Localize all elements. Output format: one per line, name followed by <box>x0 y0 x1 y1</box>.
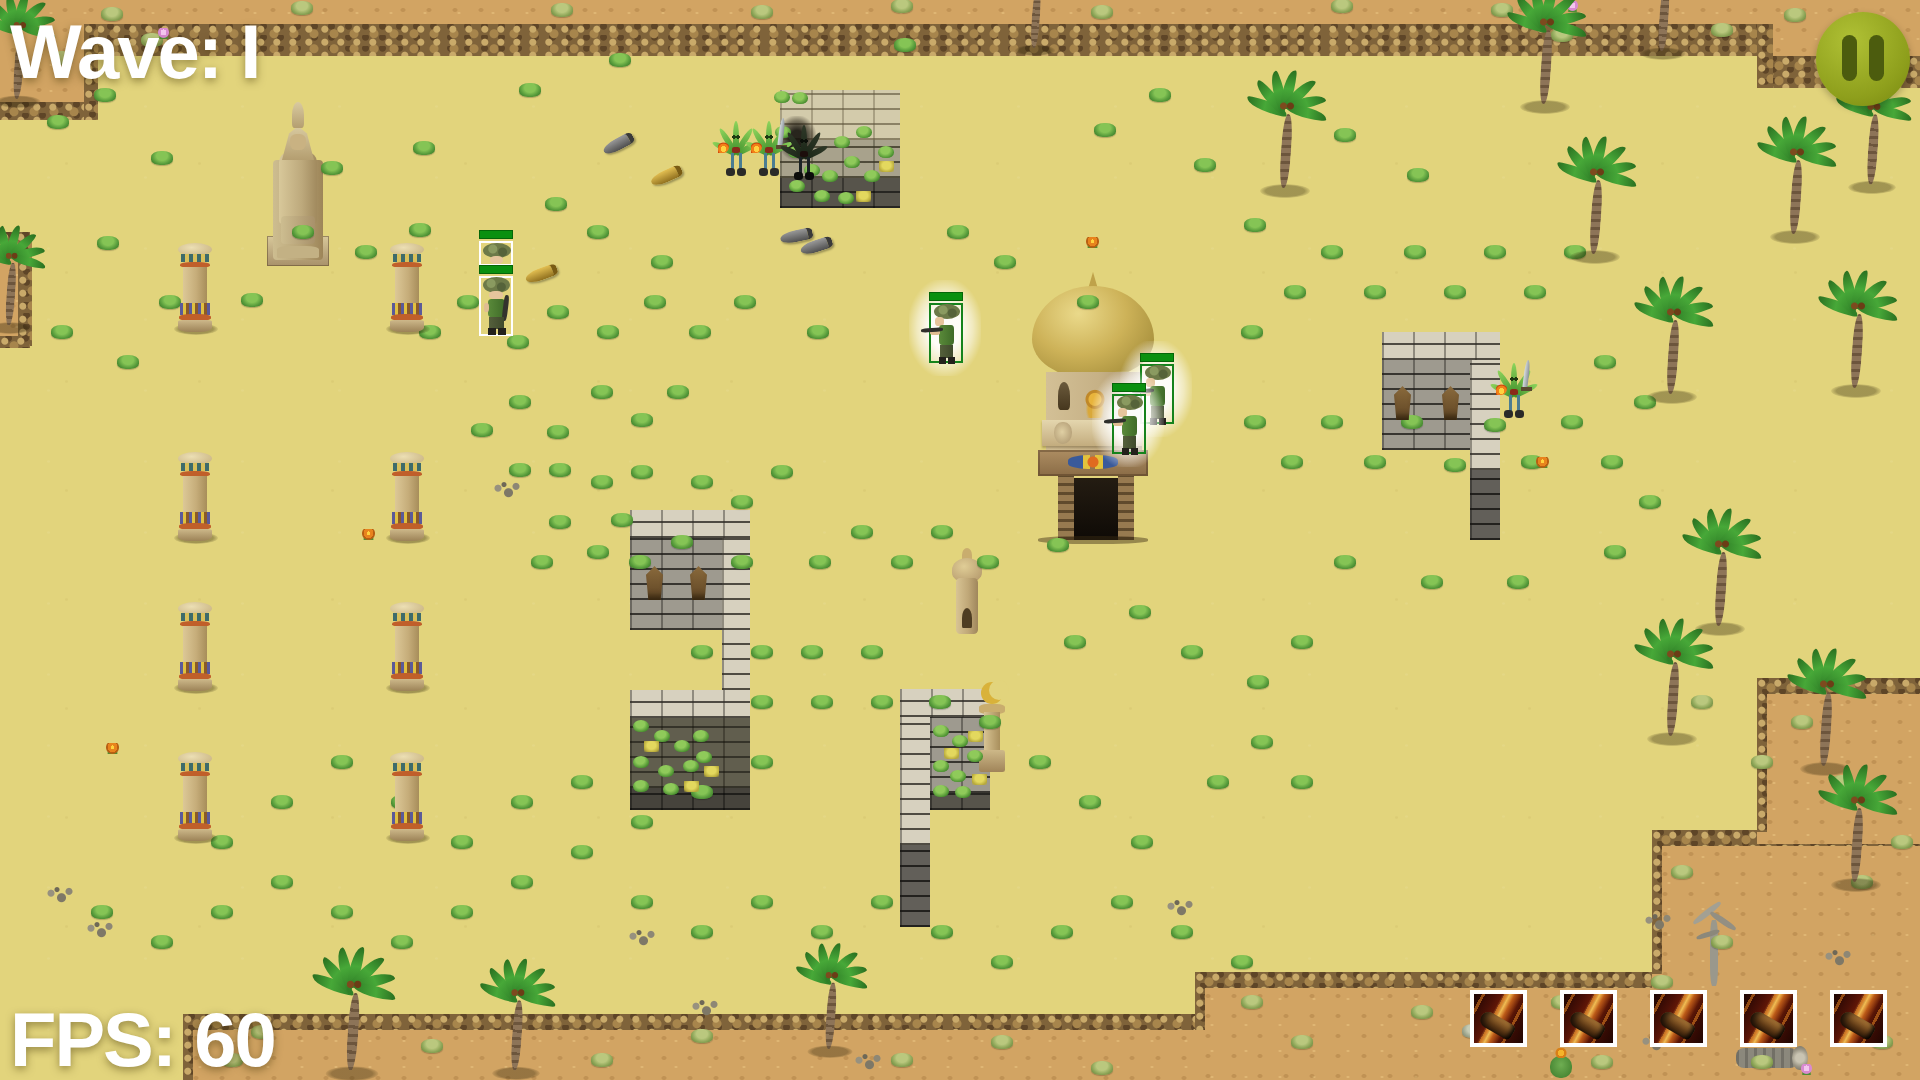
wall-vine-leaf <box>693 730 709 742</box>
grass-tuft <box>1604 545 1626 559</box>
wall-yellow-tuft <box>972 774 987 785</box>
wall-vine-leaf <box>864 170 880 182</box>
soldier-boot <box>488 328 496 335</box>
dry-grass-tuft <box>1671 865 1693 879</box>
dropped-bullet-gold <box>649 164 684 188</box>
health-bar <box>1140 353 1174 362</box>
column-plinth <box>390 320 424 332</box>
health-bar <box>479 265 513 274</box>
wall-vine-leaf <box>856 126 872 138</box>
wall-vine-leaf <box>950 770 966 782</box>
grass-tuft <box>811 695 833 709</box>
grass-tuft <box>1484 418 1506 432</box>
wave-counter: Wave: I <box>10 8 259 95</box>
weed-boot <box>794 172 803 180</box>
grass-tuft <box>591 475 613 489</box>
column-plinth <box>178 529 212 541</box>
grass-tuft <box>1029 755 1051 769</box>
grass-tuft <box>771 465 793 479</box>
grass-tuft <box>241 293 263 307</box>
pebble-cluster <box>492 481 522 499</box>
column-neck-band <box>181 463 209 471</box>
dry-grass-tuft <box>291 1 313 15</box>
grass-tuft <box>47 115 69 129</box>
grass-tuft <box>979 715 1001 729</box>
palm-coconuts <box>1667 308 1681 316</box>
pause-button[interactable] <box>1816 12 1910 106</box>
soldier-unit[interactable] <box>1108 379 1150 461</box>
weed-face <box>765 134 773 140</box>
palm-trunk <box>1849 808 1864 883</box>
pebble-cluster <box>627 929 657 947</box>
grass-tuft <box>1129 605 1151 619</box>
dry-grass-tuft <box>1331 0 1353 13</box>
game-viewport: Wave: I FPS: 60 <box>0 0 1920 1080</box>
grass-tuft <box>1244 218 1266 232</box>
grass-tuft <box>571 845 593 859</box>
ability-bar <box>1470 990 1887 1047</box>
soldier-unit[interactable] <box>475 261 517 343</box>
palm-tree <box>1750 134 1840 244</box>
palm-tree <box>1780 666 1870 776</box>
grass-tuft <box>609 53 631 67</box>
grass-tuft <box>1111 895 1133 909</box>
weed-boot <box>1515 410 1524 418</box>
dry-grass-tuft <box>1411 1005 1433 1019</box>
palm-trunk <box>1665 662 1680 737</box>
grass-tuft <box>631 815 653 829</box>
flower-orange <box>1536 457 1549 468</box>
palm-trunk <box>1538 30 1553 105</box>
grass-tuft <box>1281 455 1303 469</box>
grass-tuft <box>929 695 951 709</box>
grass-tuft <box>871 695 893 709</box>
dry-grass-tuft <box>1291 1035 1313 1049</box>
grass-tuft <box>1094 123 1116 137</box>
grass-tuft <box>1601 455 1623 469</box>
column-plinth <box>390 829 424 841</box>
dry-grass-tuft <box>1651 975 1673 989</box>
palm-coconuts <box>1280 102 1294 110</box>
palm-shadow <box>0 95 41 108</box>
column-shaft <box>183 476 207 514</box>
grass-tuft <box>1181 645 1203 659</box>
column-plinth <box>390 679 424 691</box>
weed-face <box>1510 376 1518 382</box>
grass-tuft <box>1051 925 1073 939</box>
grass-tuft <box>547 425 569 439</box>
egyptian-column <box>178 752 212 842</box>
grass-tuft <box>691 925 713 939</box>
grass-tuft <box>751 755 773 769</box>
palm-tree <box>305 966 400 1080</box>
grass-tuft <box>644 295 666 309</box>
wall-vine-leaf <box>838 192 854 204</box>
wall-vine-leaf <box>696 751 712 763</box>
grass-tuft <box>631 413 653 427</box>
dry-grass-tuft <box>891 0 913 13</box>
grass-tuft <box>991 955 1013 969</box>
palm-tree <box>1623 0 1704 60</box>
soldier-face <box>489 291 503 299</box>
grass-tuft <box>1251 735 1273 749</box>
palm-tree <box>1811 288 1901 398</box>
egyptian-column <box>178 602 212 692</box>
grass-tuft <box>1334 128 1356 142</box>
palm-coconuts <box>1667 650 1681 658</box>
grass-tuft <box>511 875 533 889</box>
grass-tuft <box>1364 285 1386 299</box>
wall-vine-leaf <box>633 756 649 768</box>
palm-trunk <box>1849 314 1864 389</box>
grass-tuft <box>751 645 773 659</box>
wall-yellow-tuft <box>644 741 659 752</box>
dry-grass-tuft <box>891 1053 913 1067</box>
soldier-sprite <box>480 277 512 335</box>
pebble-cluster <box>1165 899 1195 917</box>
grass-tuft <box>547 305 569 319</box>
column-plinth <box>178 320 212 332</box>
grass-tuft <box>611 513 633 527</box>
grass-tuft <box>931 525 953 539</box>
wall-vine-leaf <box>633 720 649 732</box>
wall-yellow-tuft <box>944 748 959 759</box>
pause-icon-bar <box>1869 35 1884 84</box>
weed-boot <box>770 168 779 176</box>
ability-slot-5[interactable] <box>1830 990 1887 1047</box>
palm-trunk <box>1278 114 1293 189</box>
ability-slot-1[interactable] <box>1470 990 1527 1047</box>
idol-figure <box>646 566 663 600</box>
column-plinth <box>178 679 212 691</box>
wall-vine-leaf <box>952 735 968 747</box>
grass-tuft <box>331 905 353 919</box>
grass-tuft <box>271 795 293 809</box>
grass-tuft <box>1077 295 1099 309</box>
grass-tuft <box>211 905 233 919</box>
palm-coconuts <box>1790 148 1804 156</box>
wall-vine-leaf <box>663 783 679 795</box>
grass-tuft <box>1047 538 1069 552</box>
palm-coconuts <box>511 989 524 997</box>
grass-tuft <box>629 555 651 569</box>
grass-tuft <box>117 355 139 369</box>
grass-tuft <box>587 225 609 239</box>
wall-vine-leaf <box>933 785 949 797</box>
dry-grass-tuft <box>1711 935 1733 949</box>
grass-tuft <box>597 325 619 339</box>
grass-tuft <box>1291 635 1313 649</box>
grass-tuft <box>1131 835 1153 849</box>
column-shaft <box>183 267 207 305</box>
dropped-bullet-grey <box>601 131 636 157</box>
grass-tuft <box>1321 245 1343 259</box>
wall-vine-leaf <box>844 156 860 168</box>
grass-tuft <box>1404 245 1426 259</box>
grass-tuft <box>355 245 377 259</box>
palm-coconuts <box>347 980 362 988</box>
palm-tree <box>790 959 871 1058</box>
grass-tuft <box>671 535 693 549</box>
column-neck-band <box>393 463 421 471</box>
palm-trunk <box>824 982 838 1049</box>
wall-yellow-tuft <box>704 766 719 777</box>
grass-tuft <box>751 895 773 909</box>
grass-tuft <box>271 875 293 889</box>
grass-tuft <box>471 423 493 437</box>
column-shaft <box>183 776 207 814</box>
pause-icon <box>1842 35 1857 84</box>
grass-tuft <box>811 925 833 939</box>
ability-slot-4[interactable] <box>1740 990 1797 1047</box>
egyptian-column <box>390 452 424 542</box>
dry-grass-tuft <box>551 3 573 17</box>
grass-tuft <box>1407 168 1429 182</box>
palm-trunk <box>1657 0 1671 51</box>
soldier-boot <box>1122 448 1129 455</box>
weed-boot <box>737 168 746 176</box>
grass-tuft <box>977 555 999 569</box>
palm-trunk <box>510 1000 524 1071</box>
flower-orange <box>1086 237 1099 248</box>
palm-tree <box>1627 294 1717 404</box>
grass-tuft <box>1444 285 1466 299</box>
grass-tuft <box>1444 458 1466 472</box>
dry-grass-tuft <box>1784 8 1806 22</box>
grass-tuft <box>409 223 431 237</box>
palm-coconuts <box>1851 796 1865 804</box>
dry-grass-tuft <box>591 1053 613 1067</box>
column-neck-band <box>181 254 209 262</box>
dry-grass-tuft <box>421 1039 443 1053</box>
column-shaft <box>395 626 419 664</box>
egyptian-column <box>178 452 212 542</box>
palm-coconuts <box>1540 18 1554 26</box>
grass-tuft <box>751 695 773 709</box>
grass-tuft <box>1064 635 1086 649</box>
weed-monster[interactable] <box>1498 360 1530 420</box>
grass-tuft <box>509 395 531 409</box>
grass-tuft <box>511 795 533 809</box>
palm-coconuts <box>1715 540 1729 548</box>
palm-trunk <box>1866 114 1880 185</box>
wall-vine-leaf <box>674 740 690 752</box>
grass-tuft <box>451 905 473 919</box>
grass-tuft <box>631 895 653 909</box>
ability-slot-3[interactable] <box>1650 990 1707 1047</box>
palm-tree <box>1811 782 1901 892</box>
sword-hilt <box>1521 387 1532 391</box>
grass-tuft <box>809 555 831 569</box>
grass-tuft <box>691 475 713 489</box>
palm-coconuts <box>6 252 18 259</box>
grass-tuft <box>894 38 916 52</box>
dropped-bullet-gold <box>524 263 559 286</box>
grass-tuft <box>549 515 571 529</box>
grass-tuft <box>509 463 531 477</box>
grass-tuft <box>851 525 873 539</box>
grass-tuft <box>549 463 571 477</box>
soldier-arm <box>484 303 489 312</box>
palm-coconuts <box>1851 302 1865 310</box>
grass-tuft <box>1231 955 1253 969</box>
wall-vine-leaf <box>933 725 949 737</box>
grass-tuft <box>1241 325 1263 339</box>
health-bar <box>929 292 963 301</box>
idol-figure <box>1442 386 1459 420</box>
idol-figure <box>1394 386 1411 420</box>
soldier-boot <box>1131 448 1138 455</box>
column-neck-band <box>181 613 209 621</box>
palm-coconuts <box>826 972 839 979</box>
grass-tuft <box>731 495 753 509</box>
palm-trunk <box>1665 320 1680 395</box>
pebble-cluster <box>45 886 75 904</box>
grass-tuft <box>1561 415 1583 429</box>
column-shaft <box>395 267 419 305</box>
soldier-unit[interactable] <box>925 288 967 370</box>
palm-tree <box>1829 90 1915 195</box>
grass-tuft <box>1194 158 1216 172</box>
grass-tuft <box>994 255 1016 269</box>
grass-tuft <box>571 775 593 789</box>
grass-tuft <box>321 161 343 175</box>
grass-tuft <box>391 935 413 949</box>
idol-figure <box>690 566 707 600</box>
soldier-sprite <box>930 304 962 362</box>
wall-vine-leaf <box>774 91 790 103</box>
health-bar <box>479 230 513 239</box>
grass-tuft <box>1284 285 1306 299</box>
dry-grass-tuft <box>1091 1061 1113 1075</box>
grass-tuft <box>891 555 913 569</box>
grass-tuft <box>1421 575 1443 589</box>
grass-tuft <box>689 325 711 339</box>
weed-boot <box>805 172 814 180</box>
weed-monster[interactable] <box>788 122 820 182</box>
column-shaft <box>395 776 419 814</box>
grass-tuft <box>947 225 969 239</box>
ability-slot-2[interactable] <box>1560 990 1617 1047</box>
soldier-boot <box>948 357 955 364</box>
pebble-cluster <box>85 921 115 939</box>
wall-yellow-tuft <box>968 731 983 742</box>
palm-tree <box>999 0 1071 56</box>
weed-boot <box>726 168 735 176</box>
column-shaft <box>183 626 207 664</box>
weed-boot <box>759 168 768 176</box>
soldier-boot <box>498 328 506 335</box>
grass-tuft <box>1149 88 1171 102</box>
wall-vine-leaf <box>933 760 949 772</box>
grass-tuft <box>1334 555 1356 569</box>
wall-yellow-tuft <box>684 781 699 792</box>
grass-tuft <box>734 295 756 309</box>
pebble-cluster <box>1823 949 1853 967</box>
weed-monster[interactable] <box>720 118 752 178</box>
dry-grass-tuft <box>1591 1055 1613 1069</box>
dry-grass-tuft <box>1091 5 1113 19</box>
palm-tree <box>1675 526 1765 636</box>
health-bar <box>1112 383 1146 392</box>
grass-tuft <box>591 385 613 399</box>
grass-tuft <box>1524 285 1546 299</box>
grass-tuft <box>331 755 353 769</box>
grass-tuft <box>1364 455 1386 469</box>
flower-orange <box>106 743 119 754</box>
wall-vine-leaf <box>955 786 971 798</box>
grass-tuft <box>1244 415 1266 429</box>
grass-tuft <box>651 255 673 269</box>
palm-tree <box>473 976 559 1080</box>
palm-coconuts <box>1590 168 1604 176</box>
wall-vine-leaf <box>967 750 983 762</box>
column-neck-band <box>393 613 421 621</box>
palm-shadow <box>0 322 31 334</box>
grass-tuft <box>151 151 173 165</box>
grass-tuft <box>531 555 553 569</box>
palm-trunk <box>1713 552 1728 627</box>
grass-tuft <box>151 935 173 949</box>
palm-coconuts <box>1820 680 1834 688</box>
grass-tuft <box>931 925 953 939</box>
pebble-cluster <box>1643 913 1673 931</box>
grass-tuft <box>1171 925 1193 939</box>
palm-tree <box>1627 636 1717 746</box>
column-shaft <box>395 476 419 514</box>
palm-tree <box>1550 154 1640 264</box>
grass-tuft <box>587 545 609 559</box>
palm-trunk <box>1818 692 1833 767</box>
palm-tree <box>1240 88 1330 198</box>
column-plinth <box>390 529 424 541</box>
column-plinth <box>178 829 212 841</box>
pebble-cluster <box>690 999 720 1017</box>
wall-vine-leaf <box>878 146 894 158</box>
flame-effect <box>1496 382 1507 395</box>
grass-tuft <box>731 555 753 569</box>
grass-tuft <box>1321 415 1343 429</box>
grass-tuft <box>292 225 314 239</box>
wall-vine-leaf <box>792 92 808 104</box>
palm-trunk <box>4 262 17 325</box>
grass-tuft <box>1639 495 1661 509</box>
wall-vine-leaf <box>658 765 674 777</box>
dry-grass-tuft <box>1711 23 1733 37</box>
grass-tuft <box>691 645 713 659</box>
grass-tuft <box>91 905 113 919</box>
egyptian-column <box>178 243 212 333</box>
dry-grass-tuft <box>751 5 773 19</box>
palm-tree <box>0 241 48 335</box>
weed-boot <box>1504 410 1513 418</box>
wall-vine-leaf <box>834 136 850 148</box>
dry-grass-tuft <box>1751 1055 1773 1069</box>
grass-tuft <box>1291 775 1313 789</box>
palm-trunk <box>1030 0 1042 48</box>
dry-grass-tuft <box>1241 995 1263 1009</box>
flame-effect <box>751 140 762 153</box>
fps-counter: FPS: 60 <box>10 996 275 1080</box>
grass-tuft <box>1594 355 1616 369</box>
column-neck-band <box>393 254 421 262</box>
grass-tuft <box>51 325 73 339</box>
palm-tree <box>1500 4 1590 114</box>
grass-tuft <box>861 645 883 659</box>
flame-effect <box>718 140 729 153</box>
flower-orange <box>362 529 375 540</box>
egyptian-column <box>390 602 424 692</box>
